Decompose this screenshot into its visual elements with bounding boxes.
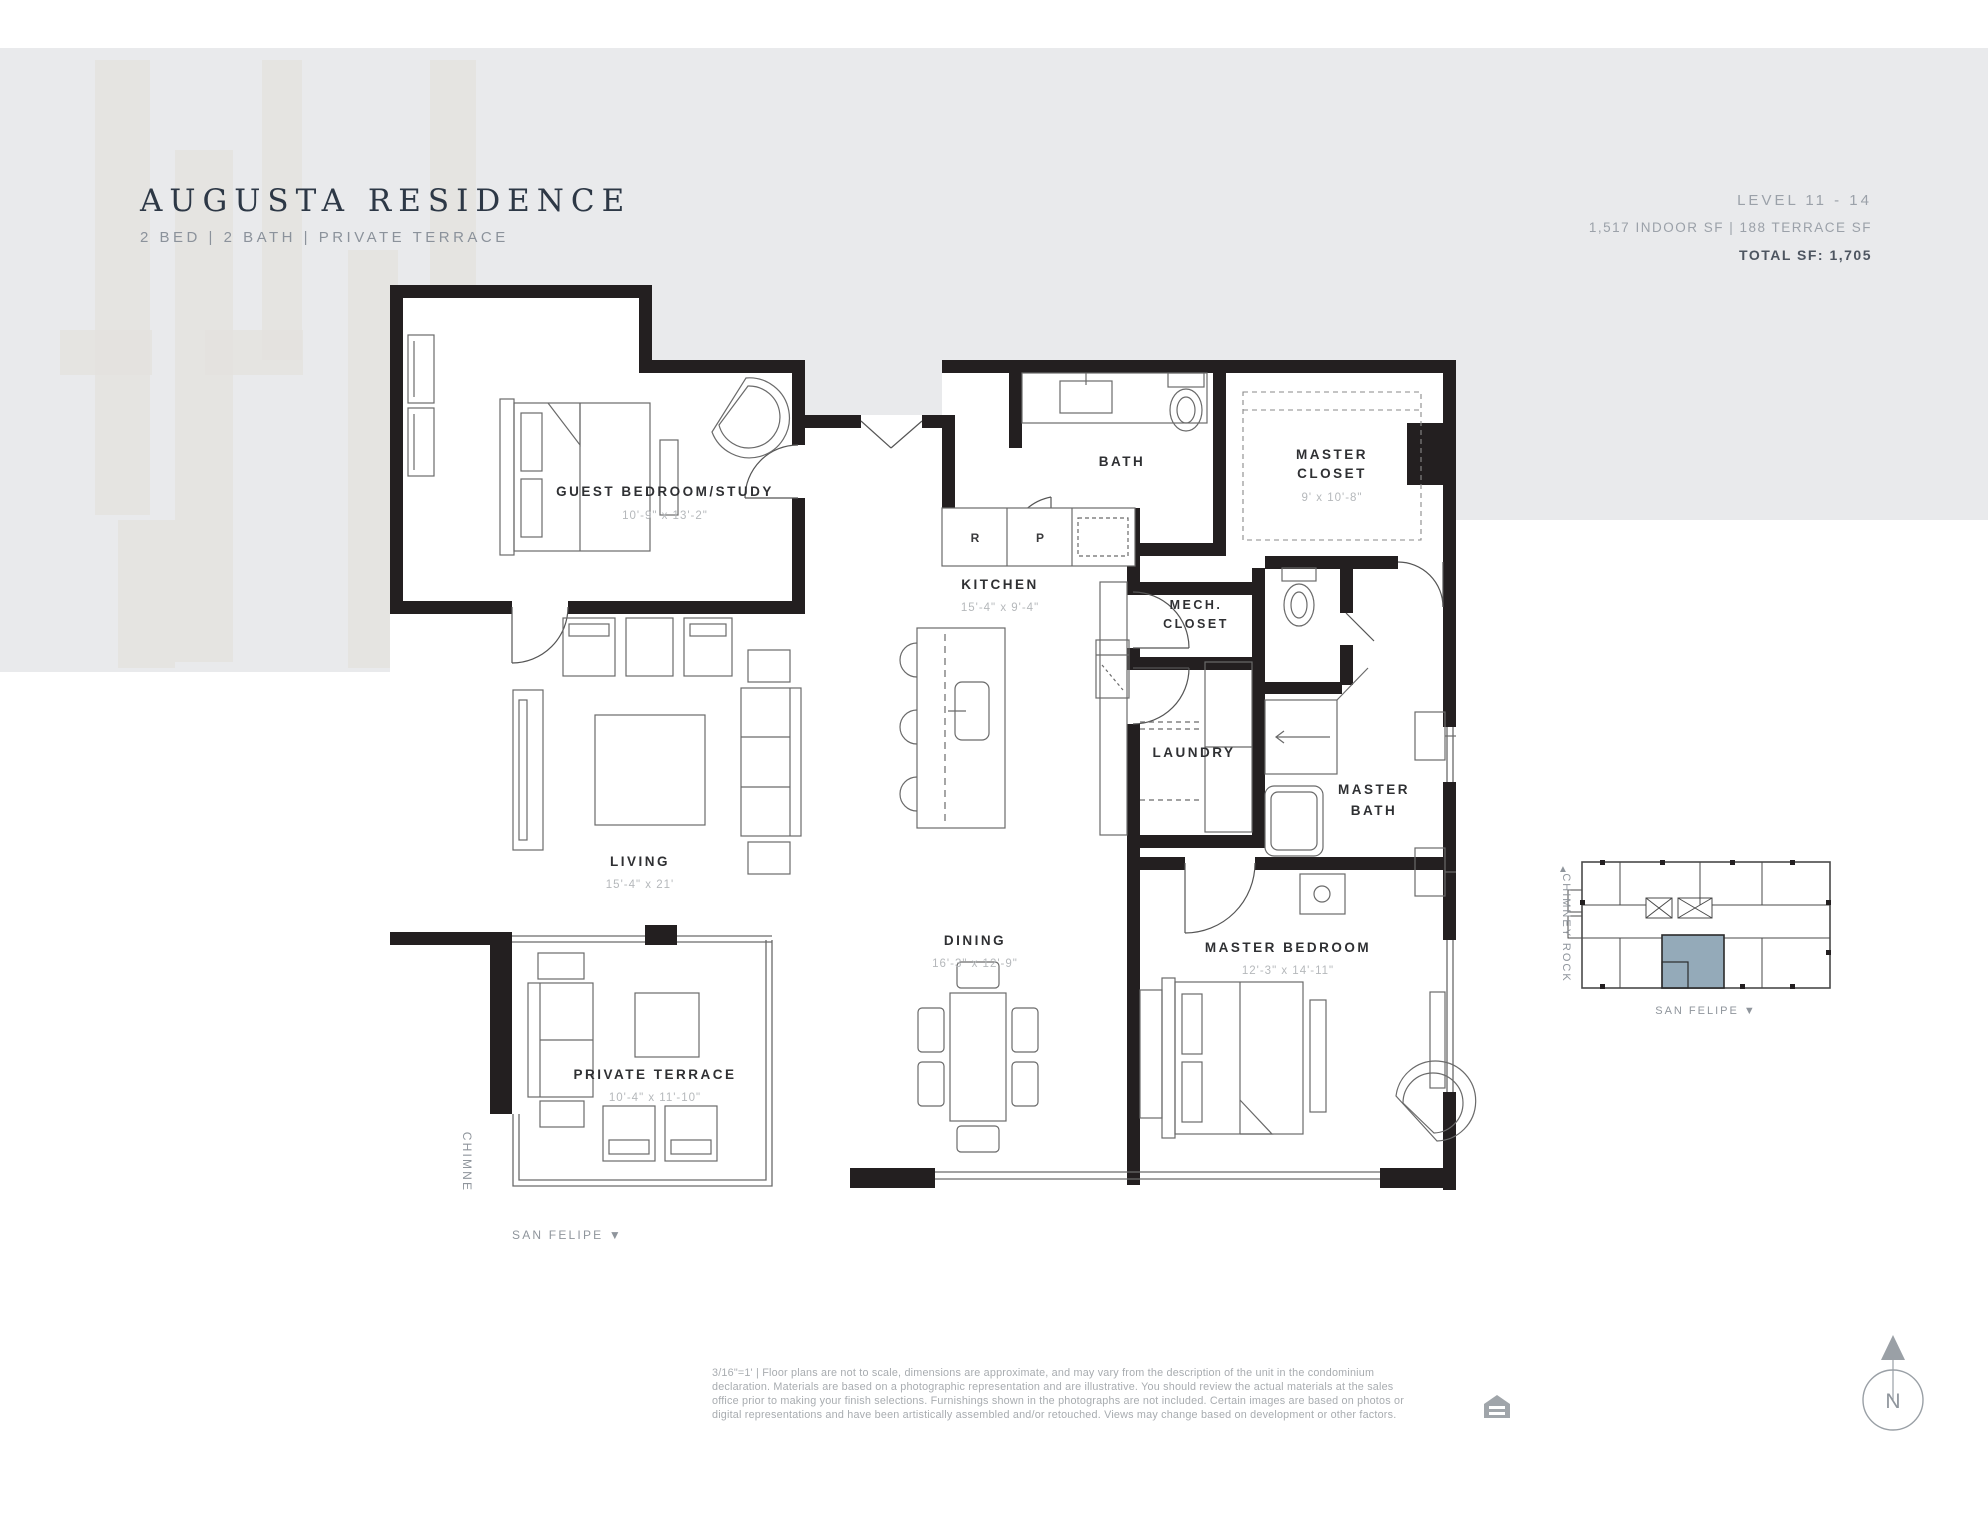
- room-dims-dining: 16'-3" x 12'-9": [932, 958, 1018, 970]
- room-label-bath: BATH: [1099, 454, 1146, 469]
- room-label-dining: DINING: [944, 933, 1006, 948]
- room-dims-master-closet: 9' x 10'-8": [1301, 492, 1362, 504]
- room-label-living: LIVING: [610, 854, 670, 869]
- disclaimer-line: declaration. Materials are based on a ph…: [712, 1380, 1190, 1394]
- room-label-master-closet: CLOSET: [1297, 466, 1367, 481]
- refrigerator-label: R: [971, 531, 980, 545]
- street-label-chimney: CHIMNE: [460, 1132, 474, 1193]
- keyplan-street-chimney-rock: CHIMNEY ROCK: [1560, 873, 1572, 982]
- disclaimer-line: digital representations and have been ar…: [712, 1408, 1190, 1422]
- room-label-guest-bedroom: GUEST BEDROOM/STUDY: [556, 484, 774, 499]
- keyplan-street-san-felipe: SAN FELIPE ▼: [1655, 1005, 1757, 1017]
- floorplan-sheet: AUGUSTA RESIDENCE 2 BED | 2 BATH | PRIVA…: [0, 0, 1988, 1536]
- room-dims-living: 15'-4" x 21': [606, 879, 674, 891]
- room-dims-master-bedroom: 12'-3" x 14'-11": [1242, 965, 1334, 977]
- room-dims-private-terrace: 10'-4" x 11'-10": [609, 1092, 701, 1104]
- disclaimer: 3/16"=1' | Floor plans are not to scale,…: [712, 1366, 1190, 1422]
- room-label-master-bath: BATH: [1351, 803, 1398, 818]
- room-dims-guest-bedroom: 10'-9" x 13'-2": [622, 510, 708, 522]
- compass-north-label: N: [1885, 1390, 1900, 1413]
- floor-plan-drawing: GUEST BEDROOM/STUDY KITCHEN BATH MASTER …: [0, 0, 1988, 1536]
- room-dims-kitchen: 15'-4" x 9'-4": [961, 602, 1039, 614]
- pantry-label: P: [1036, 531, 1044, 545]
- keyplan-north-arrow-icon: ▲: [1558, 864, 1568, 875]
- keyplan: CHIMNEY ROCK ▲ SAN FELIPE ▼: [1558, 860, 1831, 1017]
- equal-housing-icon: [1484, 1395, 1510, 1418]
- room-label-private-terrace: PRIVATE TERRACE: [573, 1067, 736, 1082]
- room-label-master-closet: MASTER: [1296, 447, 1368, 462]
- room-label-master-bath: MASTER: [1338, 782, 1410, 797]
- disclaimer-line: 3/16"=1' | Floor plans are not to scale,…: [712, 1366, 1190, 1380]
- disclaimer-line: office prior to making your finish selec…: [712, 1394, 1190, 1408]
- room-label-kitchen: KITCHEN: [961, 577, 1039, 592]
- street-label-san-felipe: SAN FELIPE ▼: [512, 1228, 623, 1242]
- compass-icon: N: [1863, 1335, 1923, 1430]
- room-label-laundry: LAUNDRY: [1153, 745, 1236, 760]
- room-label-master-bedroom: MASTER BEDROOM: [1205, 940, 1371, 955]
- room-label-mech-closet: MECH.: [1170, 598, 1223, 612]
- room-label-mech-closet: CLOSET: [1163, 617, 1229, 631]
